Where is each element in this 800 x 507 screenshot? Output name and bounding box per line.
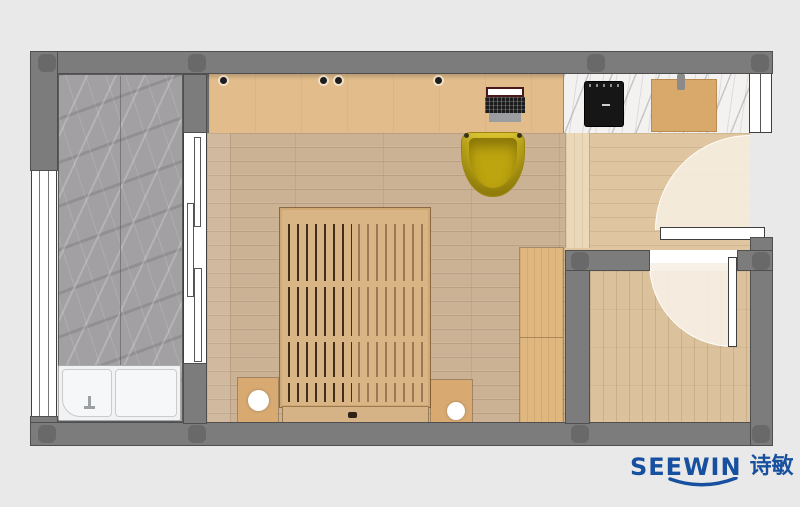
cabinet-knob-icon: [435, 77, 442, 84]
column: [571, 425, 589, 443]
column: [751, 54, 769, 72]
wall-bottom: [30, 422, 773, 446]
left-window-mullion: [48, 171, 49, 417]
brand-logo: SEEWIN 诗敏: [630, 455, 794, 479]
footboard-latch-icon: [348, 412, 357, 418]
bed-slat-rail: [288, 336, 424, 342]
floorplan-canvas: SEEWIN 诗敏: [0, 0, 800, 507]
cabinet-knob-icon: [320, 77, 327, 84]
wall-top: [30, 51, 773, 74]
logo-swoosh-icon: [668, 477, 738, 489]
column: [752, 252, 770, 270]
sliding-door-pane: [194, 268, 202, 362]
bed-slats-right: [358, 224, 424, 402]
chair-pin-icon: [464, 133, 469, 138]
wall-stub-bottom: [183, 363, 207, 424]
laptop-keyboard: [485, 97, 525, 113]
bed-lamp-left: [248, 390, 269, 411]
wardrobe: [520, 248, 563, 423]
cabinet-knob-icon: [220, 77, 227, 84]
wall-bathroom-left: [565, 250, 590, 424]
bed-slat-rail: [288, 377, 424, 383]
sliding-door-pane: [194, 137, 201, 227]
cabinet-knob-icon: [335, 77, 342, 84]
bathroom-door-leaf: [728, 257, 737, 347]
column: [188, 425, 206, 443]
column: [38, 425, 56, 443]
left-window-mullion: [39, 171, 40, 417]
counter-section: [115, 369, 177, 417]
column: [587, 54, 605, 72]
chair-pin-icon: [517, 133, 522, 138]
board-handle-icon: [677, 74, 685, 90]
top-right-window-mullion: [760, 74, 761, 132]
brand-name-cjk: 诗敏: [750, 456, 794, 478]
floor-border-strip: [207, 133, 231, 424]
laptop-base: [489, 113, 521, 122]
brand-wordmark: SEEWIN: [630, 455, 742, 479]
faucet-icon: [84, 406, 95, 409]
sink-basin: [62, 369, 112, 417]
column: [38, 54, 56, 72]
column: [188, 54, 206, 72]
sliding-door-pane: [187, 203, 194, 297]
left-window: [31, 170, 57, 418]
laptop-screen: [486, 87, 524, 97]
bed-slats-left: [288, 224, 352, 402]
wall-stub-top: [183, 74, 207, 133]
cooktop-mark: [602, 104, 610, 106]
column: [571, 252, 589, 270]
column: [752, 425, 770, 443]
hall-cabinet: [565, 133, 590, 248]
bed-lamp-right: [447, 402, 465, 420]
cooktop-knobs-icon: [589, 84, 619, 87]
bed-slat-rail: [288, 281, 424, 287]
wardrobe-seam: [520, 337, 563, 338]
wall-shadow: [207, 74, 563, 80]
